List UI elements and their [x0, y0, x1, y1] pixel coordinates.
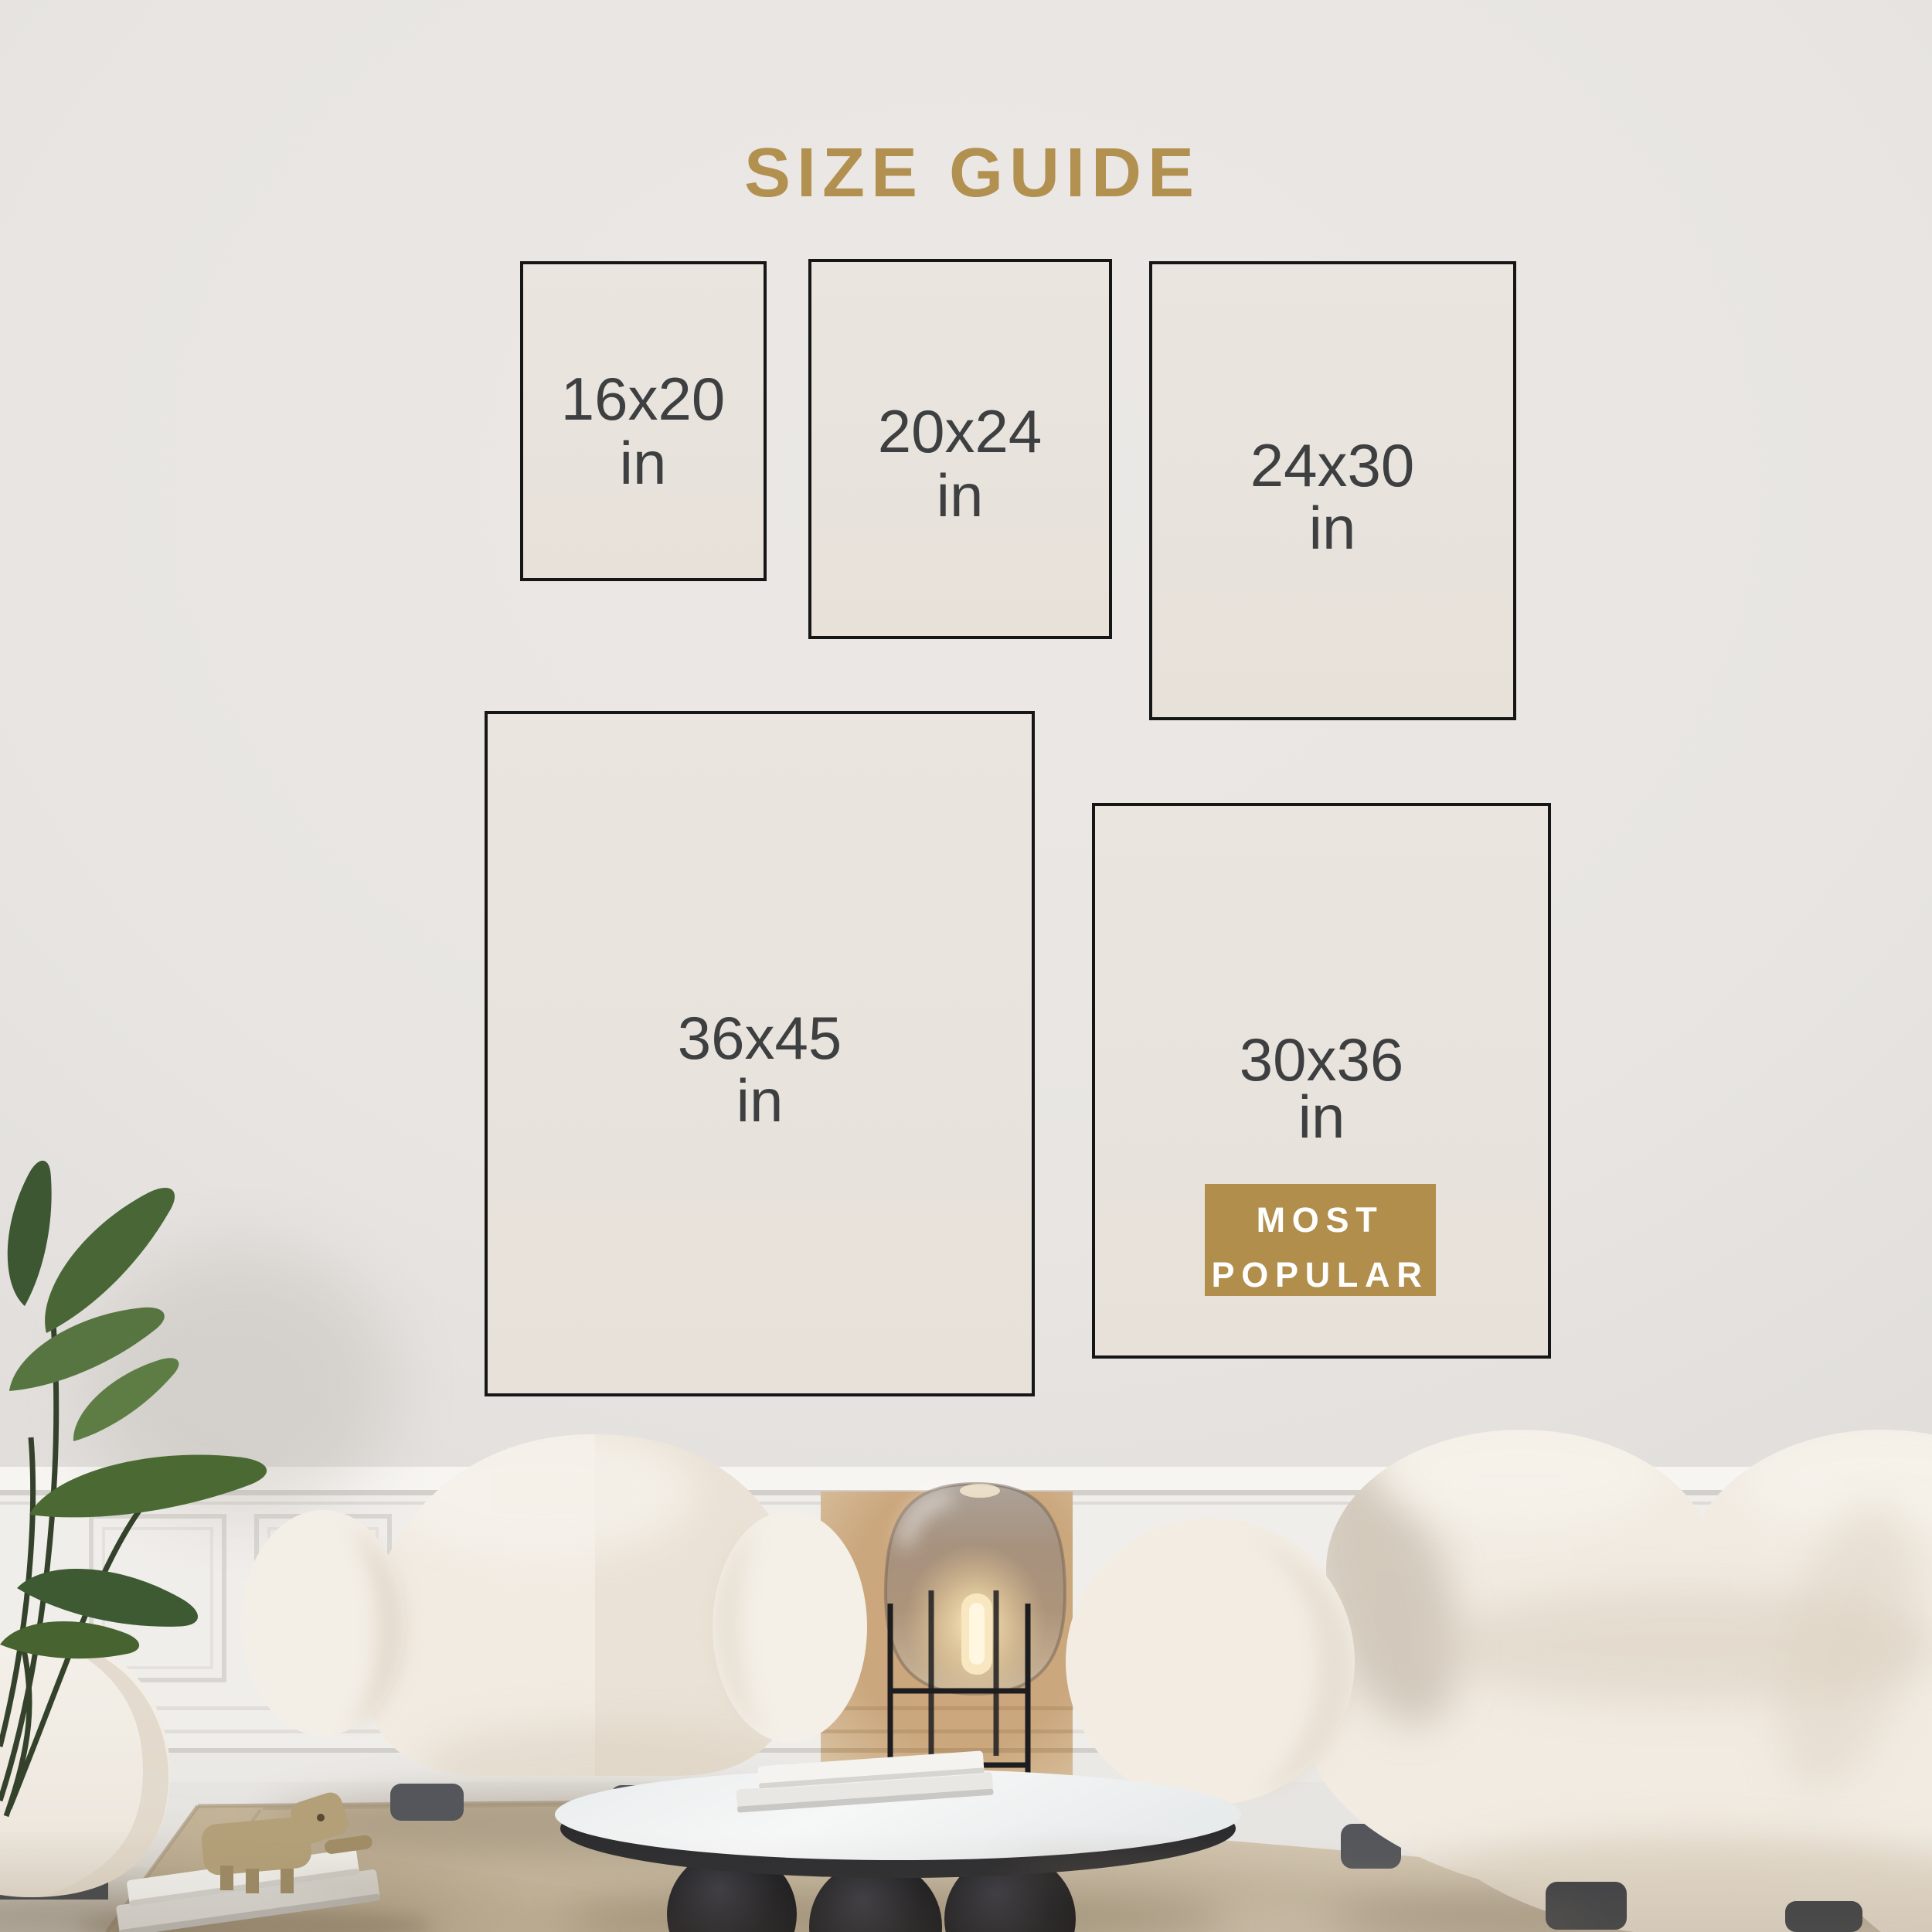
svg-text:SIZE GUIDE: SIZE GUIDE	[744, 134, 1200, 212]
svg-text:20x24: 20x24	[878, 397, 1043, 465]
svg-text:POPULAR: POPULAR	[1212, 1255, 1429, 1294]
svg-text:in: in	[1298, 1083, 1345, 1151]
svg-text:in: in	[620, 429, 667, 497]
svg-text:in: in	[736, 1066, 784, 1134]
svg-text:MOST: MOST	[1257, 1200, 1384, 1240]
svg-text:16x20: 16x20	[561, 365, 726, 433]
svg-text:24x30: 24x30	[1250, 431, 1415, 499]
svg-text:36x45: 36x45	[678, 1004, 842, 1072]
svg-text:in: in	[937, 461, 984, 529]
svg-text:in: in	[1309, 494, 1356, 562]
